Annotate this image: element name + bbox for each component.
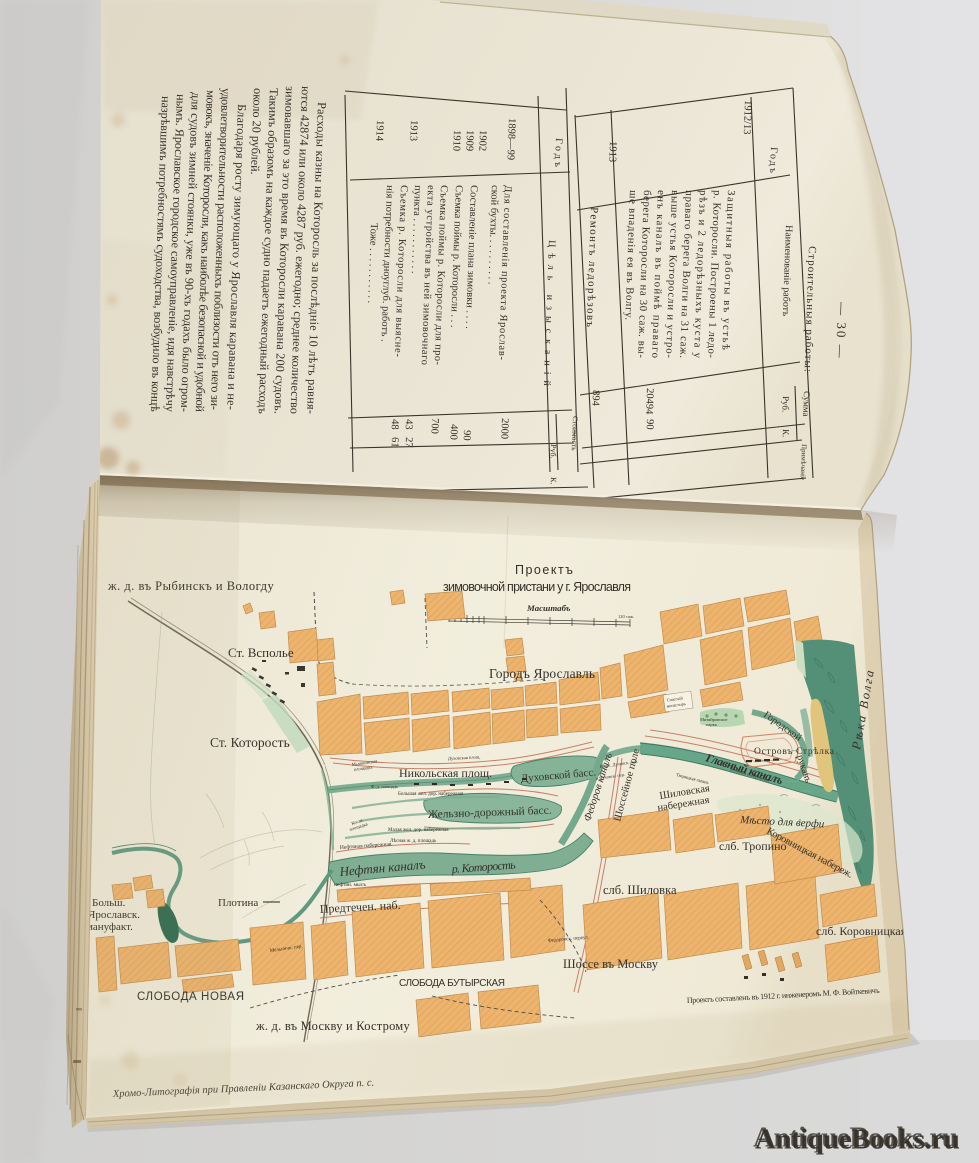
- svg-text:Стоимость: Стоимость: [570, 416, 580, 451]
- svg-text:20494: 20494: [643, 388, 655, 415]
- svg-text:Сумма: Сумма: [801, 391, 812, 417]
- svg-text:К.: К.: [549, 477, 558, 485]
- svg-text:894: 894: [589, 390, 601, 407]
- svg-text:Ст. Всполье: Ст. Всполье: [228, 645, 294, 660]
- svg-text:Руб.: Руб.: [548, 444, 557, 459]
- svg-text:120 саж.: 120 саж.: [618, 614, 634, 619]
- svg-text:зимовочной пристани у г. Яросл: зимовочной пристани у г. Ярославля: [443, 580, 631, 594]
- svg-text:слб. Коровницкая: слб. Коровницкая: [816, 924, 907, 938]
- svg-text:90: 90: [644, 419, 655, 430]
- svg-text:Малая жел. дор. набережная: Малая жел. дор. набережная: [388, 828, 449, 833]
- svg-text:К.: К.: [781, 429, 791, 438]
- svg-text:61: 61: [389, 437, 400, 448]
- svg-text:Лѣсная ж. д. площадь: Лѣсная ж. д. площадь: [390, 839, 437, 844]
- svg-text:ж. д. въ Москву и Кострому: ж. д. въ Москву и Кострому: [255, 1019, 410, 1033]
- svg-text:1913: 1913: [407, 120, 419, 141]
- svg-text:Проектъ: Проектъ: [515, 563, 575, 577]
- svg-text:27: 27: [403, 437, 414, 448]
- svg-text:Островъ Стрѣлка: Островъ Стрѣлка: [754, 746, 835, 757]
- svg-text:1912/13: 1912/13: [741, 100, 753, 135]
- svg-text:слб. Шиловка: слб. Шиловка: [603, 883, 677, 897]
- svg-text:Масштабъ: Масштабъ: [526, 603, 571, 613]
- svg-text:СЛОБОДА БУТЫРСКАЯ: СЛОБОДА БУТЫРСКАЯ: [399, 978, 505, 989]
- svg-text:Годъ: Годъ: [767, 147, 779, 175]
- svg-text:Примѣчаніе: Примѣчаніе: [799, 444, 808, 480]
- svg-text:Шоссе въ Москву: Шоссе въ Москву: [563, 957, 659, 971]
- svg-text:1902: 1902: [476, 130, 488, 151]
- svg-text:паркъ: паркъ: [706, 722, 718, 727]
- svg-text:нефтян. мысъ: нефтян. мысъ: [334, 881, 366, 888]
- svg-text:1898—99: 1898—99: [505, 118, 517, 160]
- svg-text:Руб.: Руб.: [780, 396, 791, 413]
- svg-text:2000: 2000: [498, 418, 510, 439]
- svg-text:1909: 1909: [463, 130, 475, 151]
- svg-text:— 30 —: — 30 —: [833, 301, 850, 360]
- svg-text:Большая жел. дор. набережная: Большая жел. дор. набережная: [398, 792, 464, 797]
- svg-text:400: 400: [447, 424, 459, 440]
- svg-text:Ф. д. площадь: Ф. д. площадь: [371, 784, 398, 789]
- svg-text:1910: 1910: [450, 130, 462, 151]
- svg-text:90: 90: [461, 430, 472, 441]
- svg-text:48: 48: [389, 419, 400, 430]
- svg-text:1914: 1914: [373, 120, 385, 142]
- svg-text:Городъ Ярославль: Городъ Ярославль: [489, 666, 595, 681]
- svg-text:700: 700: [428, 418, 440, 434]
- svg-text:Никольская площ.: Никольская площ.: [399, 766, 492, 780]
- svg-text:1913: 1913: [606, 141, 618, 162]
- svg-text:AntiqueBooks.ru: AntiqueBooks.ru: [755, 1124, 960, 1156]
- svg-text:43: 43: [403, 419, 414, 430]
- svg-text:Годъ: Годъ: [552, 138, 564, 170]
